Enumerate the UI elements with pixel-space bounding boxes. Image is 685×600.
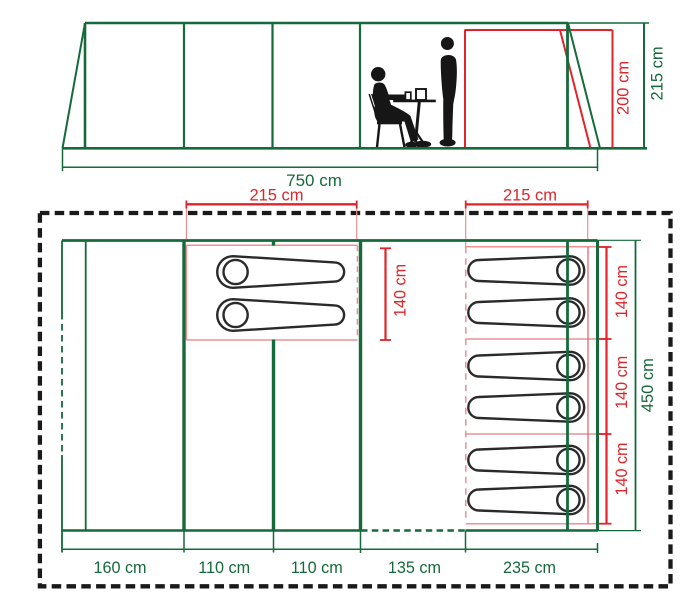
svg-text:140 cm: 140 cm xyxy=(613,356,631,409)
svg-text:110 cm: 110 cm xyxy=(291,559,343,577)
svg-text:235 cm: 235 cm xyxy=(503,559,556,577)
svg-text:135 cm: 135 cm xyxy=(388,559,441,577)
svg-text:450 cm: 450 cm xyxy=(639,358,657,412)
svg-text:160 cm: 160 cm xyxy=(93,559,146,577)
svg-text:215 cm: 215 cm xyxy=(249,187,303,205)
svg-text:140 cm: 140 cm xyxy=(392,264,410,317)
svg-text:140 cm: 140 cm xyxy=(613,265,631,318)
svg-text:200 cm: 200 cm xyxy=(615,61,633,115)
svg-text:110 cm: 110 cm xyxy=(198,559,250,577)
svg-text:215 cm: 215 cm xyxy=(503,187,557,205)
svg-text:215 cm: 215 cm xyxy=(648,46,666,100)
svg-text:140 cm: 140 cm xyxy=(613,442,631,495)
